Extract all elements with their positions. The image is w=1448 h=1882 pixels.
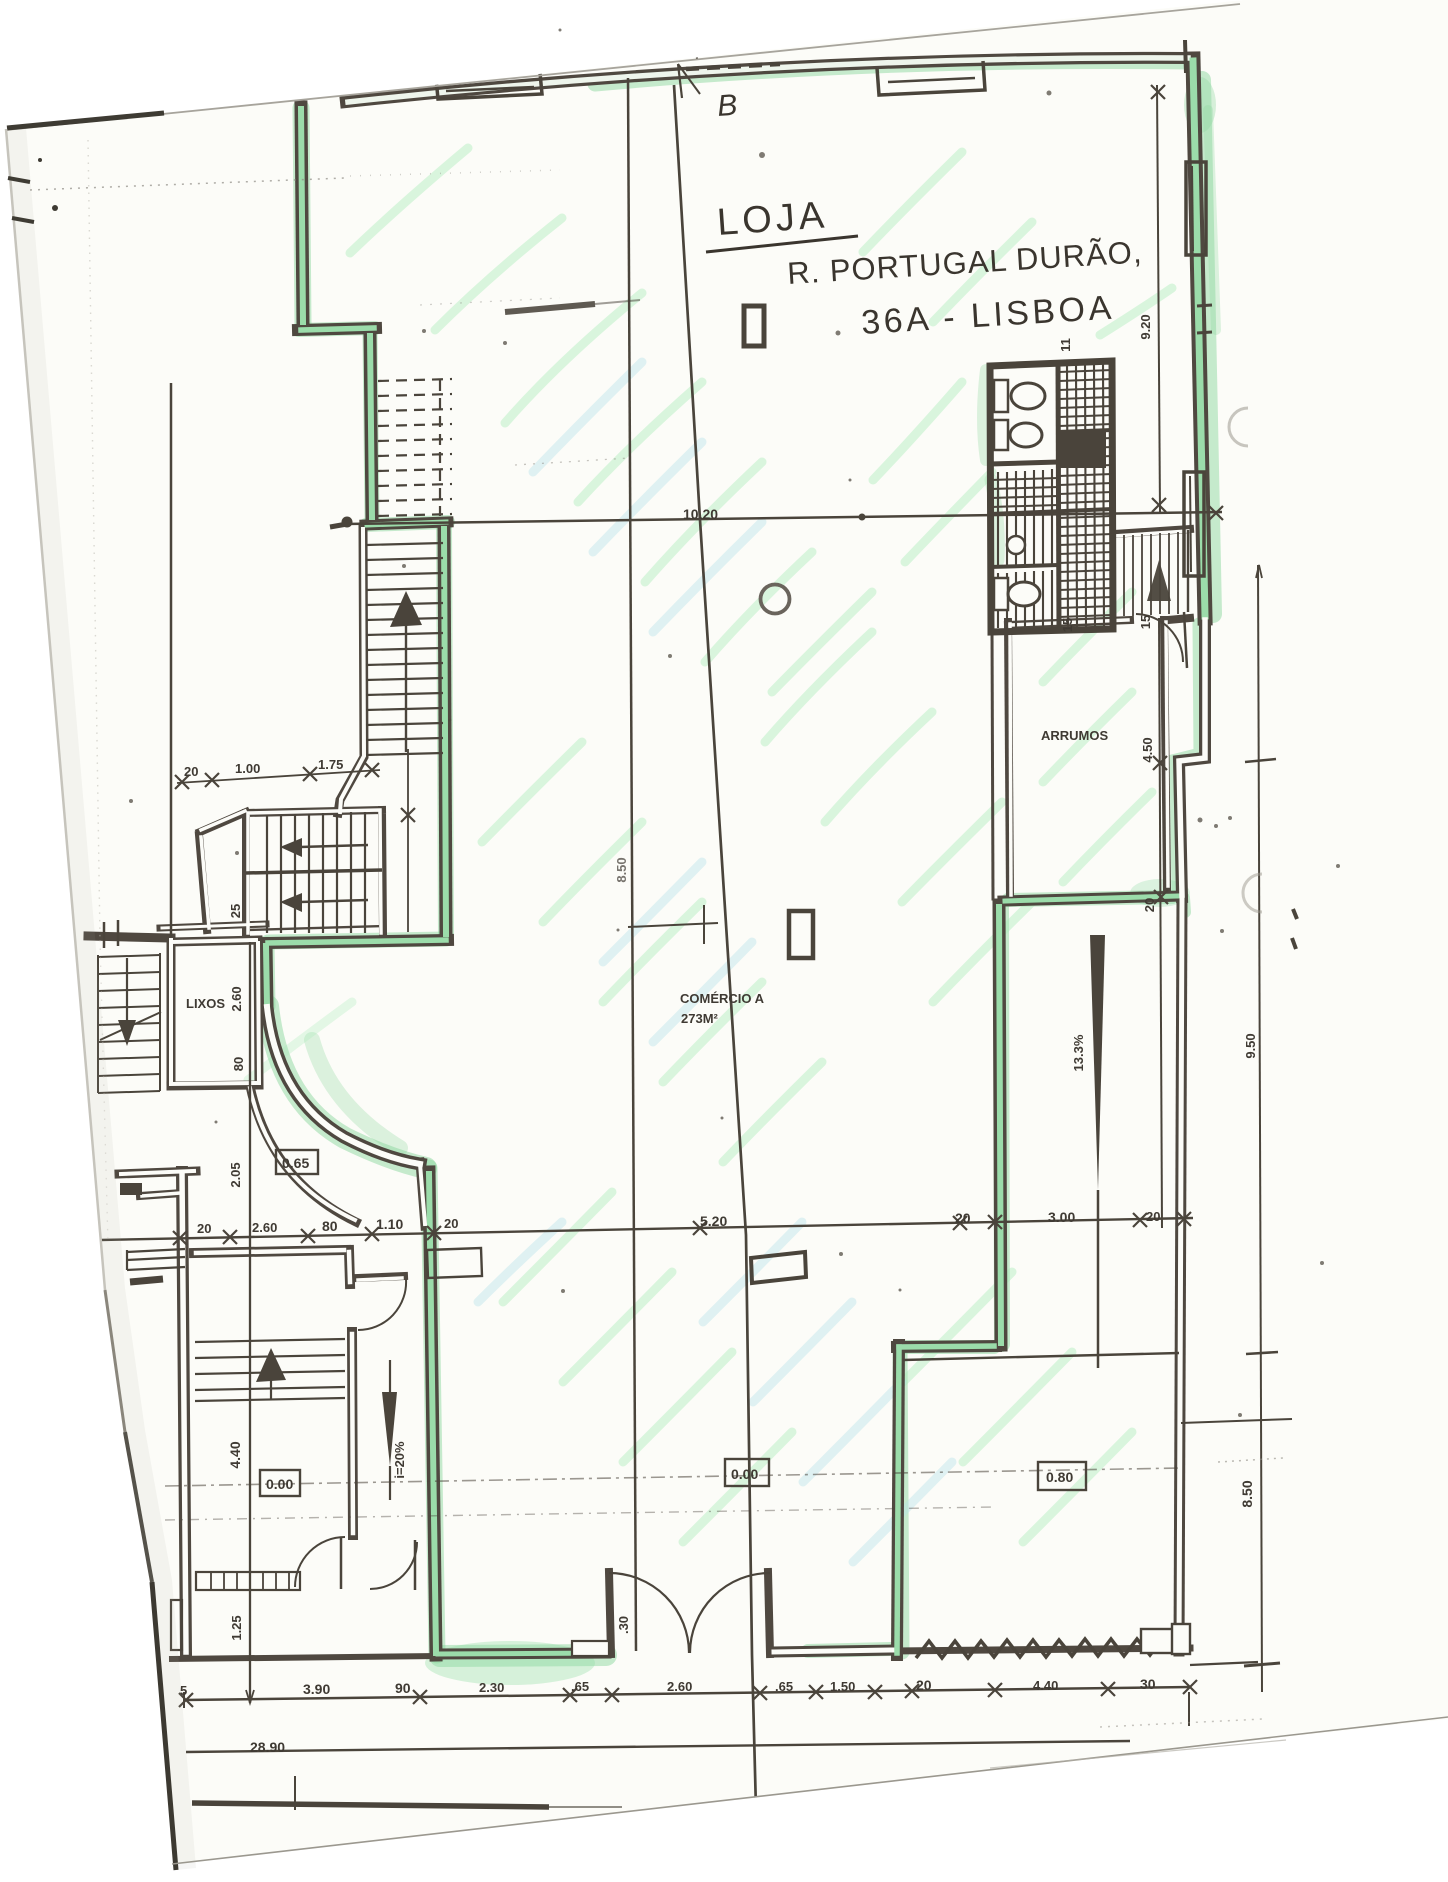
- svg-text:1.25: 1.25: [229, 1615, 244, 1640]
- svg-text:20: 20: [955, 1210, 971, 1226]
- svg-text:3.00: 3.00: [1048, 1209, 1075, 1225]
- svg-text:20: 20: [197, 1221, 211, 1236]
- svg-text:5.20: 5.20: [700, 1213, 727, 1229]
- svg-text:2.60: 2.60: [667, 1679, 692, 1694]
- svg-text:4.40: 4.40: [1033, 1678, 1058, 1693]
- svg-text:3.90: 3.90: [303, 1681, 330, 1697]
- svg-text:B: B: [716, 89, 738, 123]
- svg-text:8.50: 8.50: [614, 857, 629, 882]
- svg-text:2.30: 2.30: [479, 1680, 504, 1695]
- svg-text:8.50: 8.50: [1239, 1480, 1255, 1507]
- svg-text:11: 11: [1058, 338, 1073, 352]
- svg-text:1.75: 1.75: [318, 757, 343, 772]
- svg-text:10.20: 10.20: [683, 506, 718, 522]
- svg-text:LOJA: LOJA: [716, 194, 830, 244]
- svg-text:20: 20: [1142, 898, 1157, 912]
- svg-text:28.90: 28.90: [250, 1739, 285, 1755]
- svg-text:273M²: 273M²: [681, 1011, 719, 1026]
- svg-text:ARRUMOS: ARRUMOS: [1041, 728, 1108, 743]
- svg-text:90: 90: [395, 1680, 411, 1696]
- svg-text:9.20: 9.20: [1138, 314, 1153, 339]
- svg-text:20: 20: [184, 764, 198, 779]
- svg-text:2.60: 2.60: [252, 1220, 277, 1235]
- svg-text:4.50: 4.50: [1140, 737, 1155, 762]
- svg-text:.65: .65: [571, 1679, 589, 1694]
- svg-text:1.50: 1.50: [830, 1679, 855, 1694]
- svg-text:2.05: 2.05: [228, 1162, 243, 1187]
- svg-text:25: 25: [228, 904, 243, 918]
- svg-text:1.00: 1.00: [235, 761, 260, 776]
- svg-text:15: 15: [1138, 615, 1153, 629]
- svg-text:COMÉRCIO A: COMÉRCIO A: [680, 991, 765, 1006]
- svg-text:i=20%: i=20%: [392, 1441, 407, 1479]
- svg-text:0.65: 0.65: [282, 1155, 309, 1171]
- svg-text:20: 20: [444, 1216, 458, 1231]
- svg-text:20: 20: [1146, 1209, 1160, 1224]
- svg-text:13.3%: 13.3%: [1071, 1034, 1086, 1071]
- svg-text:9.50: 9.50: [1243, 1033, 1258, 1058]
- svg-text:1.10: 1.10: [376, 1216, 403, 1232]
- svg-text:30: 30: [1140, 1676, 1156, 1692]
- svg-text:20: 20: [916, 1677, 932, 1693]
- svg-text:.30: .30: [616, 1616, 631, 1634]
- svg-text:4.40: 4.40: [227, 1441, 243, 1468]
- svg-text:.65: .65: [775, 1679, 793, 1694]
- svg-text:0.00: 0.00: [731, 1466, 758, 1482]
- svg-text:0.80: 0.80: [1046, 1469, 1073, 1485]
- svg-text:80: 80: [231, 1057, 246, 1071]
- svg-text:80: 80: [322, 1218, 338, 1234]
- svg-text:15: 15: [1060, 618, 1075, 632]
- svg-text:2.60: 2.60: [229, 986, 244, 1011]
- svg-text:LIXOS: LIXOS: [186, 996, 225, 1011]
- svg-text:0.00: 0.00: [266, 1476, 293, 1492]
